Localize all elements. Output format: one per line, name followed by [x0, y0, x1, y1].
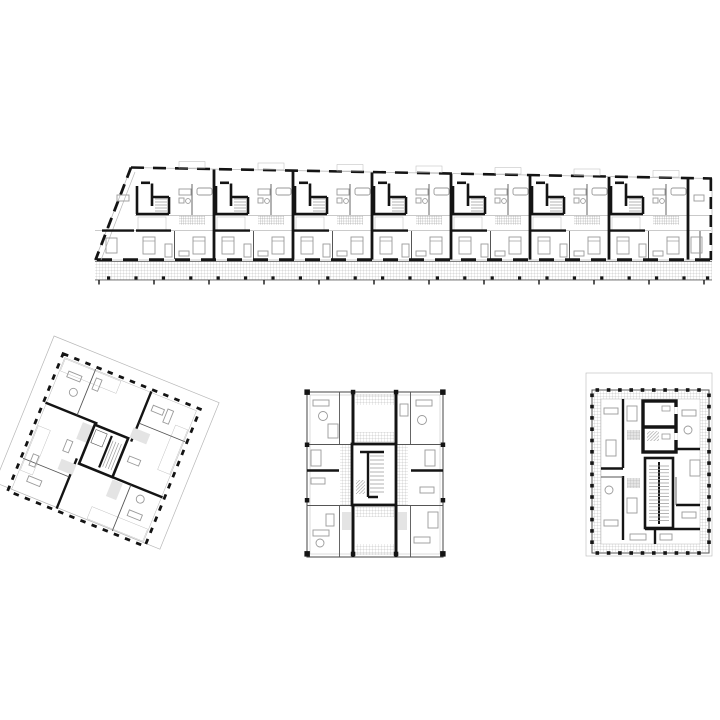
east-bay-interior [691, 195, 704, 259]
plan-linear-block [95, 162, 712, 285]
plan-tower-center [304, 389, 445, 557]
perimeter-columns [8, 354, 201, 547]
pinwheel-walls [10, 356, 197, 543]
plan-tower-right [586, 373, 712, 556]
walkway-ticks [99, 280, 704, 285]
service-blocks [627, 430, 640, 488]
service-core [643, 401, 678, 452]
entry-hatches [340, 394, 408, 555]
party-walls [601, 399, 700, 544]
unit-modules [136, 182, 686, 260]
partitions [10, 356, 197, 543]
closet [342, 512, 351, 530]
columns [304, 389, 445, 556]
gallery-walkway [95, 262, 712, 285]
furniture [311, 400, 438, 547]
stair-core [645, 458, 673, 528]
closet [398, 512, 407, 530]
north-balconies [179, 162, 679, 178]
floor-plan-canvas [0, 0, 720, 720]
inner-sill [310, 395, 440, 554]
perimeter-sill [12, 358, 197, 543]
stair-core [55, 407, 150, 503]
stub-walls [353, 392, 396, 557]
stair-core [352, 444, 396, 505]
balcony-hatches [13, 359, 195, 541]
plan-rotated-tower [0, 336, 219, 552]
drawing-sheet [0, 0, 720, 720]
